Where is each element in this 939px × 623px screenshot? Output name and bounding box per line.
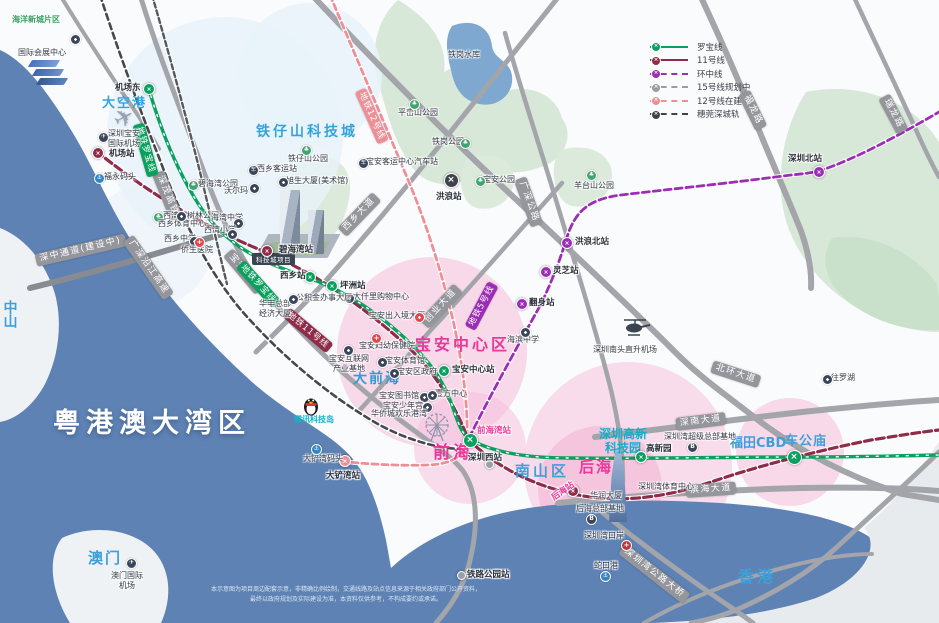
building-icon xyxy=(427,390,438,401)
helicopter-icon xyxy=(622,316,652,338)
station-label: 深圳西站 xyxy=(468,451,502,463)
station-label: 西乡站 xyxy=(280,269,306,281)
poi-label: 壹方中心 xyxy=(435,389,467,399)
area-label: 腾讯科技岛 xyxy=(294,415,334,424)
station-label: 灵芝站 xyxy=(553,264,579,276)
building-icon xyxy=(343,345,354,356)
poi-label: 西乡客运站 xyxy=(257,164,297,174)
building-icon xyxy=(389,368,400,379)
legend-item: ×15号线规划中 xyxy=(650,81,780,94)
poi-label: 宝安图书馆 xyxy=(379,391,419,401)
park-icon: ♣ xyxy=(188,180,199,191)
station-marker: × xyxy=(540,266,552,278)
station-label: 洪浪站 xyxy=(436,190,462,202)
metro-station-icon: × xyxy=(651,69,661,79)
station-marker xyxy=(457,571,466,580)
legend-label: 15号线规划中 xyxy=(697,81,750,93)
poi-label: 宝安妇幼保健院 xyxy=(359,341,415,351)
area-label: 澳门 xyxy=(88,550,122,568)
poi-label: 后海总部基地 xyxy=(576,504,624,514)
legend-label: 环中线 xyxy=(697,68,723,80)
poi-label: 往罗湖 xyxy=(831,373,855,383)
legend-item: ×11号线 xyxy=(650,54,780,67)
bay-area-transit-map: 科技城项目 ×罗宝线×11号线×环中线×15号线规划中×12号线在建中×穗莞深城… xyxy=(0,0,939,623)
map-graphics xyxy=(0,0,939,623)
station-marker: × xyxy=(261,245,273,257)
poi-label: 福永码头 xyxy=(104,172,136,182)
station-marker: × xyxy=(787,450,802,465)
area-label: 南山区 xyxy=(515,463,569,481)
building-icon xyxy=(822,374,833,385)
legend-label: 穗莞深城轨 xyxy=(697,108,740,120)
legend-label: 11号线 xyxy=(697,54,725,66)
headquarters-icon: B xyxy=(586,514,597,525)
project-building: 科技城项目 xyxy=(260,190,340,270)
station-label: 大铲湾站 xyxy=(326,469,360,481)
station-label: 铁路公园站 xyxy=(467,568,510,580)
park-icon: ♣ xyxy=(409,99,420,110)
park-icon: ♣ xyxy=(460,138,471,149)
park-icon: ♣ xyxy=(301,145,312,156)
poi-label: 宝安互联网 产业基地 xyxy=(329,354,369,373)
metro-station-icon: × xyxy=(651,42,661,52)
building-icon xyxy=(288,294,299,305)
building-icon xyxy=(377,357,388,368)
area-label: 福田CBD xyxy=(730,436,786,451)
station-marker: × xyxy=(444,173,459,188)
station-marker: × xyxy=(561,237,573,249)
hospital-icon: + xyxy=(371,333,382,344)
bus-station-icon: 车 xyxy=(358,158,369,169)
poi-label: 深圳湾口岸 xyxy=(584,531,624,541)
area-label: 铁仔山科技城 xyxy=(256,124,358,141)
station-label: 翻身站 xyxy=(529,296,555,308)
poi-label: 大仟里购物中心 xyxy=(353,292,409,302)
poi-label: 公积金办事大厅 xyxy=(296,293,352,303)
poi-label: 深圳湾超级总部基地 xyxy=(664,432,736,442)
poi-label: 宝安体育馆 xyxy=(385,356,425,366)
station-label: 宝安中心站 xyxy=(452,363,495,375)
building-icon xyxy=(278,177,289,188)
legend-item: ×罗宝线 xyxy=(650,40,780,53)
park-icon: ♣ xyxy=(586,170,597,181)
station-label: 深圳北站 xyxy=(788,152,822,164)
metro-line-legend: ×罗宝线×11号线×环中线×15号线规划中×12号线在建中×穗莞深城轨 xyxy=(650,40,780,121)
station-marker: × xyxy=(143,83,155,95)
station-marker: × xyxy=(92,147,104,159)
building-icon xyxy=(70,34,81,45)
station-label: 坪洲站 xyxy=(340,279,366,291)
station-marker: × xyxy=(463,433,478,448)
map-disclaimer: 本示意图为项目周边配套示意，非精确比例绘制，交通线路及站点信息来源于相关政府部门… xyxy=(196,585,496,604)
qq-penguin-icon xyxy=(303,395,319,416)
park-icon: ♣ xyxy=(475,176,486,187)
station-label: 碧海湾站 xyxy=(279,243,313,255)
airport-icon: ✈ xyxy=(126,558,137,569)
area-label: 后海 xyxy=(579,459,613,477)
area-label: 粤港澳大湾区 xyxy=(53,408,251,440)
anchor-icon: ⚓ xyxy=(94,173,105,184)
station-marker: × xyxy=(813,166,825,178)
airport-icon: ✈ xyxy=(98,132,109,143)
station-marker: × xyxy=(326,280,338,292)
station-label: 高新园 xyxy=(646,442,672,454)
poi-label: 华丰总部 经济大厦 xyxy=(259,299,291,318)
poi-label: 蛇口港 xyxy=(594,561,618,571)
station-label: 前海湾站 xyxy=(477,424,511,436)
poi-label: 宝安区政府 xyxy=(397,367,437,377)
poi-label: 宝安公园 xyxy=(483,175,515,185)
building-icon xyxy=(520,327,531,338)
metro-station-icon: × xyxy=(651,56,661,66)
station-label: 机场东 xyxy=(115,81,141,93)
area-label: 车公庙 xyxy=(785,434,827,449)
poi-label: 华润大厦 xyxy=(590,491,622,501)
area-label: 香港 xyxy=(738,568,776,587)
building-icon xyxy=(227,229,238,240)
red-poi-icon xyxy=(414,312,425,323)
station-marker: × xyxy=(438,365,450,377)
poi-label: 华侨城欢乐港湾 xyxy=(371,409,427,419)
anchor-icon: ⚓ xyxy=(311,444,322,455)
legend-item: ×环中线 xyxy=(650,67,780,80)
convention-center-building xyxy=(30,60,70,100)
area-label: 宝安中心区 xyxy=(415,336,510,355)
metro-station-icon: × xyxy=(651,96,661,106)
poi-label: 羊台山公园 xyxy=(574,181,614,191)
station-label: 机场站 xyxy=(109,147,135,159)
metro-station-icon: × xyxy=(651,110,661,120)
poi-label: 深圳湾体育中心 xyxy=(638,482,694,492)
poi-label: 澳门国际 机场 xyxy=(111,571,143,590)
headquarters-icon: B xyxy=(687,442,698,453)
legend-item: ×12号线在建中 xyxy=(650,94,780,107)
poi-label: 平峦山公园 xyxy=(398,108,438,118)
poi-label: 沃尔玛 xyxy=(224,186,248,196)
area-label: 中山 xyxy=(1,300,18,328)
poi-label: 国际会展中心 xyxy=(18,48,66,58)
poi-label: 旭生大厦(美术馆) xyxy=(286,176,348,186)
building-icon xyxy=(249,183,260,194)
poi-label: 深圳南头直升机场 xyxy=(593,345,657,355)
bus-station-icon: 车 xyxy=(248,165,259,176)
poi-label: 宝安客运中心汽车站 xyxy=(366,157,438,167)
port-checkpoint-icon: + xyxy=(621,540,632,551)
hospital-icon: + xyxy=(194,237,205,248)
metro-station-icon: × xyxy=(651,83,661,93)
legend-label: 罗宝线 xyxy=(697,41,723,53)
station-label: 洪浪北站 xyxy=(575,235,609,247)
building-icon xyxy=(176,211,187,222)
anchor-icon: ⚓ xyxy=(600,571,611,582)
area-label: 海洋新城片区 xyxy=(12,15,60,24)
ferris-wheel-icon xyxy=(421,411,453,443)
poi-label: 大铲湾码头 xyxy=(303,454,343,464)
station-marker: × xyxy=(516,298,528,310)
poi-label: 铁岗水库 xyxy=(448,50,480,60)
